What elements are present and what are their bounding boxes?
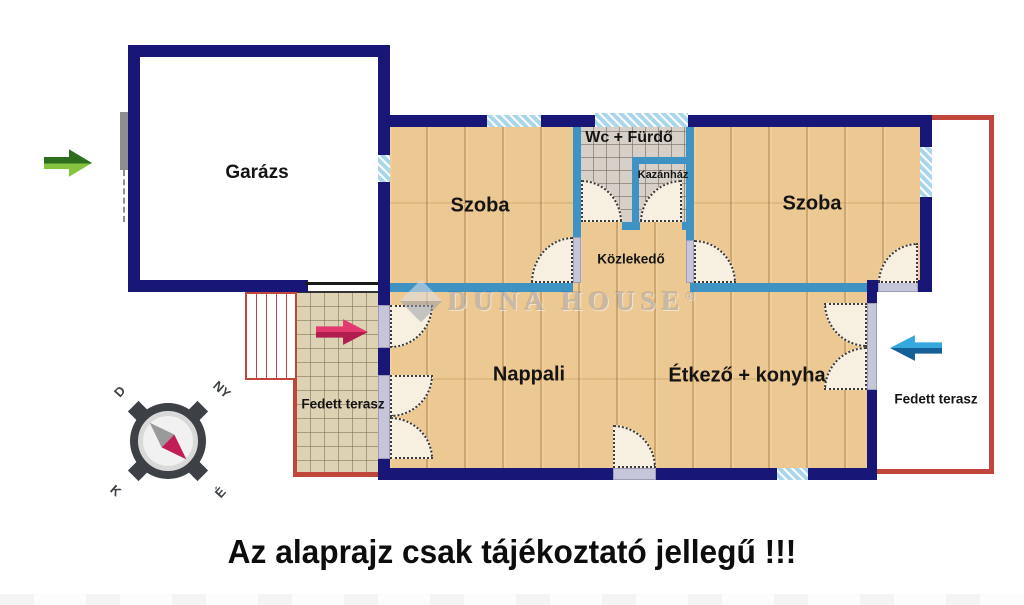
room-label-garage: Garázs [225,162,288,184]
doorway-bedroom-right [686,240,694,283]
garage-wall-bottom [128,280,308,292]
terrace-right-arrow-icon [890,334,942,362]
entrance-steps [245,292,297,380]
house-wall-right [920,115,932,292]
watermark-brand-text: DUNA HOUSE [448,286,686,316]
boiler-room-north-wall [632,157,694,164]
terrace-right-border-right [989,115,994,474]
window-garage-bedroom [378,155,390,182]
bedroom-right-south-wall-b [918,280,932,292]
garage-door-symbol [120,112,128,170]
garage-wall-top [128,45,390,57]
garage-wall-left [128,45,140,292]
room-label-bedroom-left: Szoba [451,195,510,218]
bottom-texture-strip [0,594,1024,605]
compass-label-east: K [107,482,124,499]
entrance-arrow-green-icon [44,148,92,178]
doorway-bedroom-left [573,237,581,283]
dining-east-wall-lower [867,390,877,480]
room-label-hallway: Közlekedő [597,252,665,267]
window-top-bathroom [595,113,688,127]
doorway-dining-terrace [867,303,877,390]
compass-label-south: D [111,383,128,400]
room-label-bathroom: Wc + Fürdő [585,129,673,147]
window-top-bedroom-left [487,115,541,127]
watermark-registered-mark: ® [686,289,695,303]
doorway-living-south [613,468,656,480]
window-bedroom-right-east [920,147,932,197]
watermark-logo-icon [400,280,442,322]
room-label-terrace-left: Fedett terasz [301,397,384,412]
room-label-living-room: Nappali [493,364,565,387]
bedroom-right-west-wall [686,127,694,240]
room-label-dining-kitchen: Étkező + konyha [668,365,825,388]
terrace-left-tile-floor [297,291,378,474]
terrace-left-border-bottom [293,472,385,477]
dining-east-wall-upper [867,283,877,303]
bedroom-left-east-wall [573,127,581,237]
doorway-living-terrace-single [378,305,390,348]
disclaimer-text: Az alaprajz csak tájékoztató jellegű !!! [20,533,1003,571]
compass-label-north: É [212,484,229,500]
bathroom-south-wall-a [573,222,581,230]
room-label-boiler-room: Kazánház [638,169,689,181]
watermark-brand: DUNA HOUSE® [448,286,695,317]
compass-rose: D NY K É [123,396,213,486]
window-bottom-dining [777,468,808,480]
watermark: DUNA HOUSE® [396,282,726,324]
terrace-right-border-top [930,115,994,120]
boiler-room-west-wall [632,157,639,230]
garage-door-track-dashed [123,170,125,222]
room-label-terrace-right: Fedett terasz [894,392,977,407]
room-label-bedroom-right: Szoba [783,193,842,216]
terrace-right-border-bottom [877,469,994,474]
compass-label-west: NY [210,378,233,401]
floor-plan-canvas: D NY K É DUNA HOUSE® Garázs Szoba Szoba … [0,0,1024,605]
doorway-living-terrace-double [378,375,390,459]
